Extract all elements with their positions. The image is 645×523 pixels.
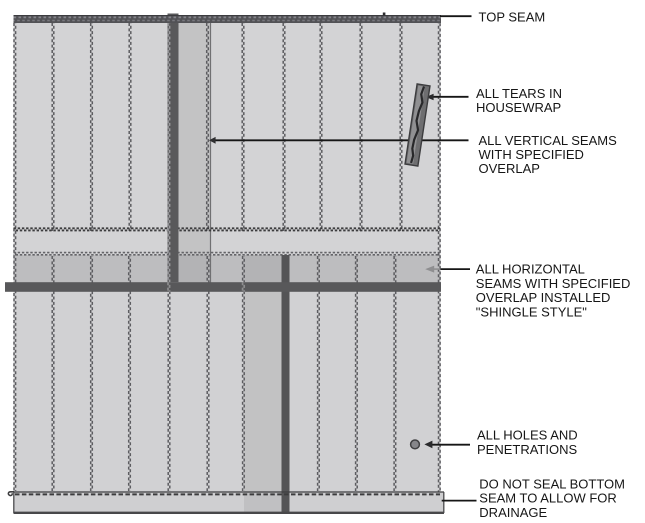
svg-text:"SHINGLE STYLE": "SHINGLE STYLE" <box>476 304 587 319</box>
svg-text:DO NOT SEAL BOTTOM: DO NOT SEAL BOTTOM <box>479 476 625 491</box>
svg-text:OVERLAP INSTALLED: OVERLAP INSTALLED <box>476 290 611 305</box>
svg-text:HOUSEWRAP: HOUSEWRAP <box>476 100 561 115</box>
svg-text:SEAM TO ALLOW FOR: SEAM TO ALLOW FOR <box>479 491 617 506</box>
svg-text:ALL HOLES AND: ALL HOLES AND <box>477 428 578 443</box>
svg-text:OVERLAP: OVERLAP <box>479 161 540 176</box>
svg-text:WITH SPECIFIED: WITH SPECIFIED <box>479 147 584 162</box>
svg-text:SEAMS WITH SPECIFIED: SEAMS WITH SPECIFIED <box>476 276 631 291</box>
svg-text:ALL VERTICAL SEAMS: ALL VERTICAL SEAMS <box>479 133 618 148</box>
svg-text:ALL TEARS IN: ALL TEARS IN <box>476 86 562 101</box>
svg-text:PENETRATIONS: PENETRATIONS <box>477 442 577 457</box>
svg-text:ALL HORIZONTAL: ALL HORIZONTAL <box>476 262 585 277</box>
svg-text:DRAINAGE: DRAINAGE <box>479 505 547 520</box>
svg-text:TOP SEAM: TOP SEAM <box>479 10 546 25</box>
